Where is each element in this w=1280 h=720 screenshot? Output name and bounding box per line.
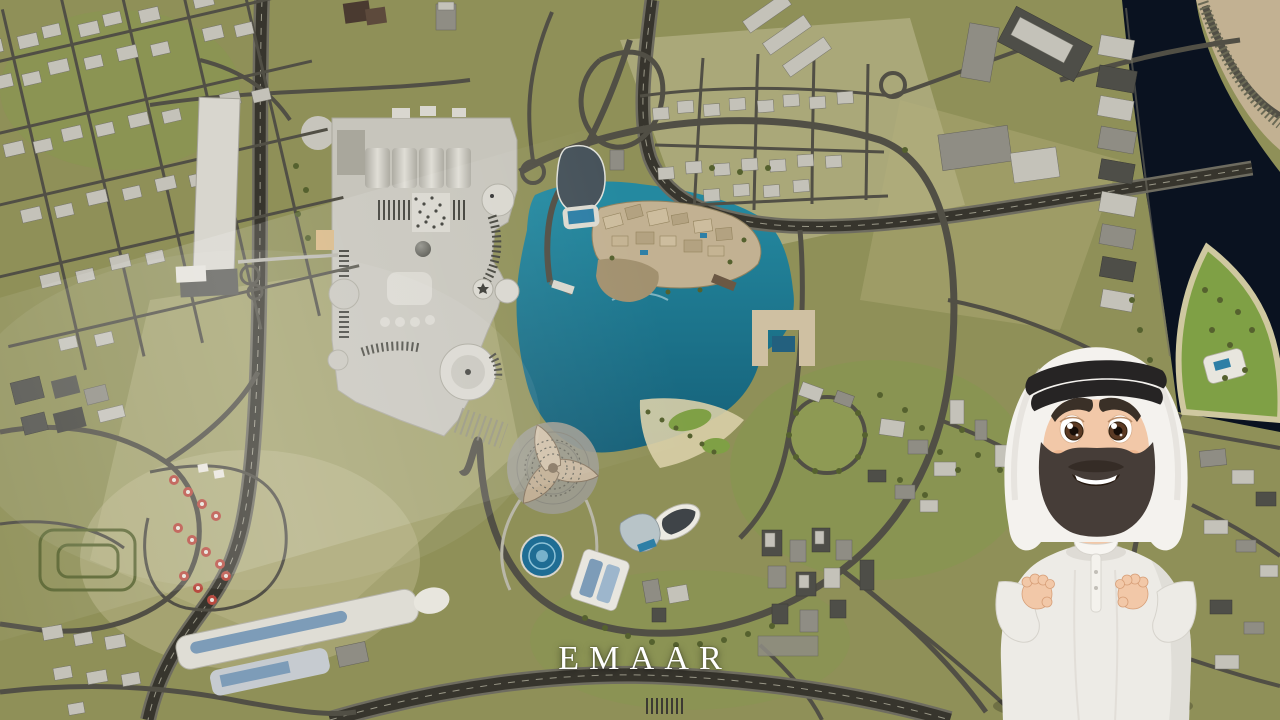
left-eye [1060,415,1084,443]
right-hand [1116,574,1149,609]
emirati-guide-character [996,347,1196,720]
button [1094,570,1098,574]
button [1094,586,1098,590]
left-hand [1022,574,1055,609]
right-eye [1108,415,1132,443]
head [1004,347,1187,550]
emaar-wordmark: EMAAR [548,640,732,678]
video-frame: EMAAR [0,0,1280,720]
aerial-map [0,0,1280,720]
placket [1091,554,1101,612]
